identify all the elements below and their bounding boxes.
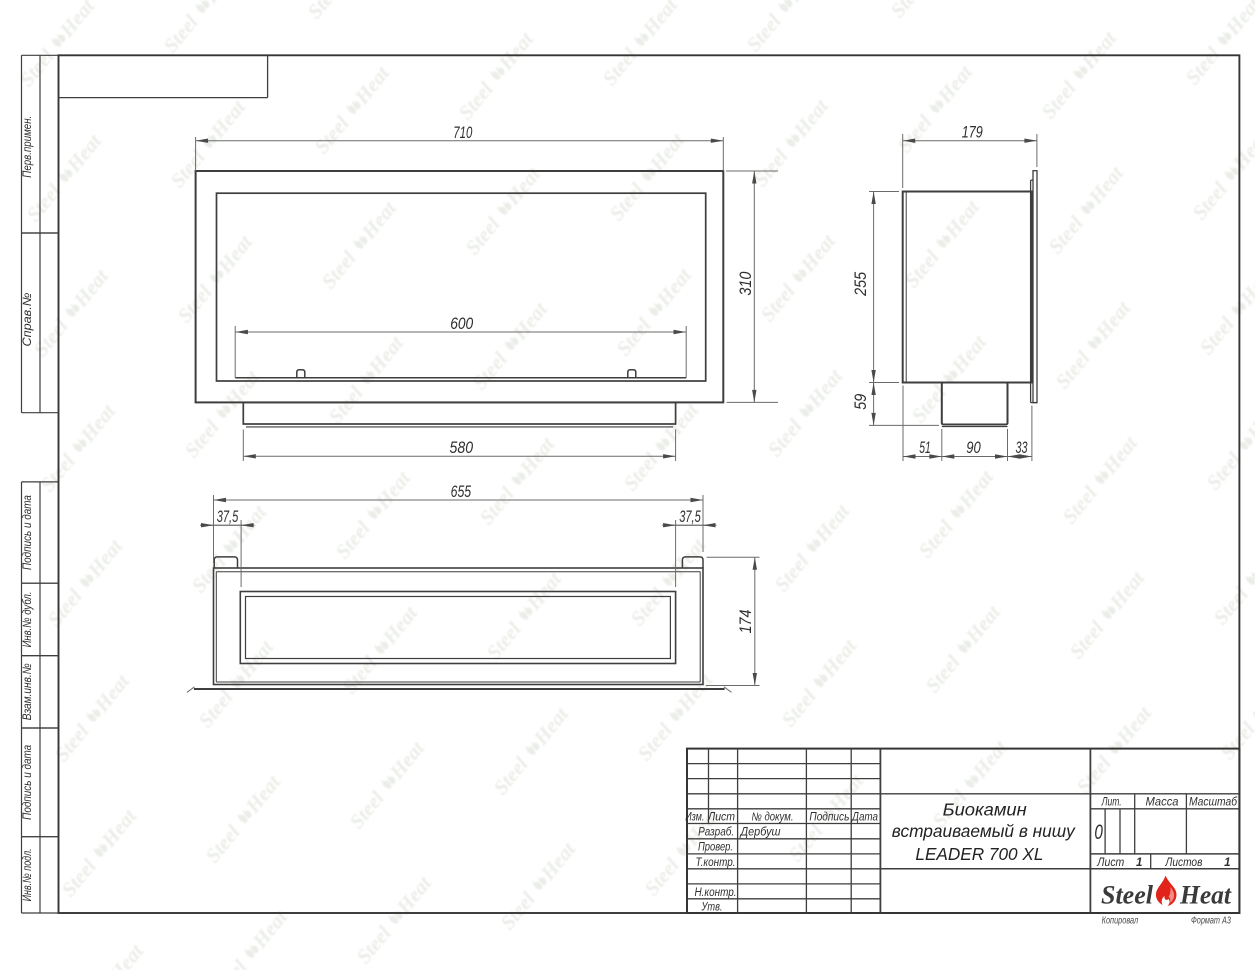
svg-text:Лист: Лист bbox=[707, 811, 735, 823]
svg-text:1: 1 bbox=[1136, 857, 1142, 869]
svg-text:Подпись и дата: Подпись и дата bbox=[20, 495, 34, 570]
svg-text:Steel: Steel bbox=[1101, 880, 1154, 909]
svg-text:0: 0 bbox=[1094, 821, 1103, 844]
svg-text:59: 59 bbox=[852, 394, 870, 410]
svg-text:310: 310 bbox=[737, 272, 755, 296]
svg-text:600: 600 bbox=[450, 315, 473, 333]
svg-text:710: 710 bbox=[453, 124, 472, 142]
svg-text:Инв.№ дубл.: Инв.№ дубл. bbox=[20, 591, 34, 647]
svg-text:Масштаб: Масштаб bbox=[1189, 797, 1237, 809]
svg-text:179: 179 bbox=[962, 124, 983, 142]
svg-text:Н.контр.: Н.контр. bbox=[695, 887, 737, 899]
svg-text:Масса: Масса bbox=[1146, 797, 1179, 809]
svg-text:Перв.примен.: Перв.примен. bbox=[20, 116, 34, 178]
svg-text:Инв.№ подл.: Инв.№ подл. bbox=[20, 848, 34, 901]
svg-text:LEADER 700 XL: LEADER 700 XL bbox=[915, 844, 1043, 864]
svg-text:Подпись: Подпись bbox=[809, 811, 849, 823]
svg-text:255: 255 bbox=[852, 271, 870, 297]
svg-text:1: 1 bbox=[1224, 857, 1230, 869]
svg-text:Лит.: Лит. bbox=[1101, 797, 1122, 809]
svg-text:33: 33 bbox=[1016, 439, 1028, 457]
svg-text:Лист: Лист bbox=[1096, 857, 1124, 869]
svg-text:Копировал: Копировал bbox=[1102, 916, 1139, 927]
svg-text:Heat: Heat bbox=[1179, 880, 1232, 909]
svg-text:Дата: Дата bbox=[850, 811, 878, 823]
svg-text:Дербуш: Дербуш bbox=[739, 826, 781, 838]
svg-text:655: 655 bbox=[451, 483, 472, 501]
svg-text:Биокамин: Биокамин bbox=[943, 800, 1027, 820]
svg-text:580: 580 bbox=[450, 439, 474, 457]
svg-text:37,5: 37,5 bbox=[679, 508, 701, 526]
svg-text:Формат А3: Формат А3 bbox=[1191, 915, 1231, 926]
svg-text:37,5: 37,5 bbox=[217, 508, 239, 526]
svg-text:Листов: Листов bbox=[1165, 857, 1203, 869]
svg-text:встраиваемый в нишу: встраиваемый в нишу bbox=[892, 821, 1076, 841]
svg-text:Разраб.: Разраб. bbox=[698, 826, 734, 838]
svg-text:174: 174 bbox=[737, 610, 755, 634]
svg-text:51: 51 bbox=[919, 439, 931, 457]
svg-text:Подпись и дата: Подпись и дата bbox=[20, 745, 34, 820]
svg-text:Взам.инв.№: Взам.инв.№ bbox=[20, 663, 34, 720]
svg-text:№ докум.: № докум. bbox=[752, 811, 794, 823]
svg-text:90: 90 bbox=[966, 439, 981, 457]
svg-text:Справ.№: Справ.№ bbox=[20, 293, 34, 347]
svg-text:Т.контр.: Т.контр. bbox=[696, 857, 736, 869]
svg-text:Изм.: Изм. bbox=[685, 811, 704, 823]
svg-text:Утв.: Утв. bbox=[701, 902, 723, 914]
svg-text:Провер.: Провер. bbox=[698, 842, 733, 854]
